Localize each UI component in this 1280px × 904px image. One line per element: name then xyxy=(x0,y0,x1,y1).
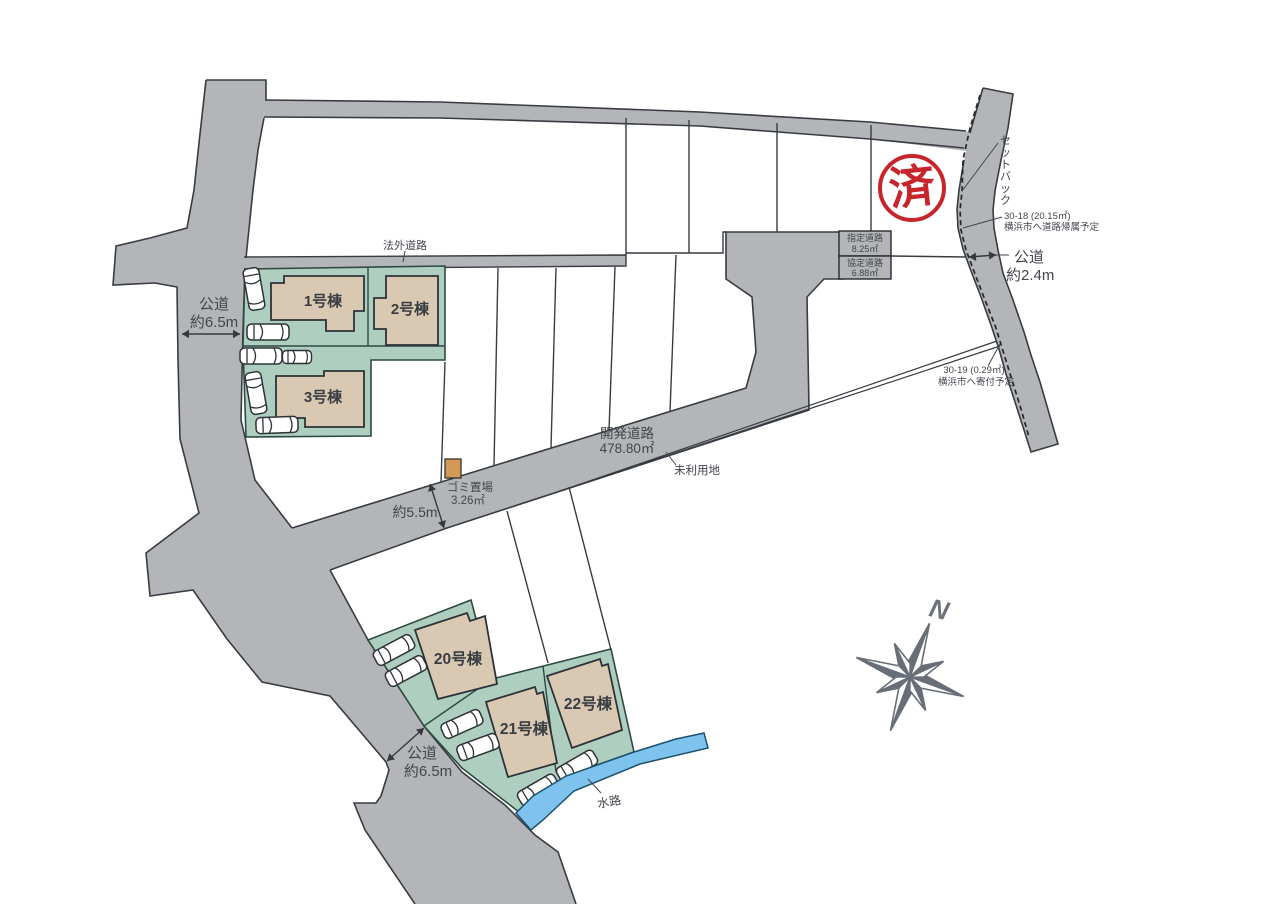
svg-text:ッ: ッ xyxy=(1000,183,1011,195)
svg-text:約6.5m: 約6.5m xyxy=(190,314,238,331)
svg-text:30-19 (0.29㎡): 30-19 (0.29㎡) xyxy=(943,365,1004,376)
svg-text:協定道路: 協定道路 xyxy=(847,257,883,268)
svg-text:ト: ト xyxy=(1000,159,1011,171)
svg-text:未利用地: 未利用地 xyxy=(674,464,720,477)
svg-text:ク: ク xyxy=(1000,194,1011,207)
svg-text:ゴミ置場: ゴミ置場 xyxy=(447,480,493,494)
svg-text:公道: 公道 xyxy=(407,745,437,762)
svg-text:公道: 公道 xyxy=(1014,249,1044,266)
svg-text:ッ: ッ xyxy=(1000,147,1011,159)
svg-text:法外道路: 法外道路 xyxy=(383,238,427,252)
svg-text:公道: 公道 xyxy=(199,296,229,313)
svg-text:1号棟: 1号棟 xyxy=(304,292,343,310)
svg-text:約5.5m: 約5.5m xyxy=(392,504,437,520)
svg-text:30-18 (20.15㎡): 30-18 (20.15㎡) xyxy=(1004,211,1071,222)
svg-text:約2.4m: 約2.4m xyxy=(1006,267,1054,284)
svg-text:済: 済 xyxy=(886,159,938,216)
svg-text:横浜市へ道路帰属予定: 横浜市へ道路帰属予定 xyxy=(1004,221,1100,233)
svg-text:セ: セ xyxy=(1000,134,1011,147)
svg-text:2号棟: 2号棟 xyxy=(391,300,430,318)
svg-text:3.26㎡: 3.26㎡ xyxy=(451,494,485,507)
svg-text:指定道路: 指定道路 xyxy=(847,232,883,243)
svg-text:約6.5m: 約6.5m xyxy=(404,763,452,780)
svg-text:22号棟: 22号棟 xyxy=(564,694,613,713)
svg-text:21号棟: 21号棟 xyxy=(500,719,549,738)
svg-text:20号棟: 20号棟 xyxy=(434,649,483,668)
svg-text:横浜市へ寄付予定: 横浜市へ寄付予定 xyxy=(938,376,1015,388)
svg-text:開発道路: 開発道路 xyxy=(600,426,654,441)
svg-text:バ: バ xyxy=(1000,170,1011,183)
svg-text:3号棟: 3号棟 xyxy=(304,388,343,406)
svg-text:6.88㎡: 6.88㎡ xyxy=(852,268,879,278)
svg-text:8.25㎡: 8.25㎡ xyxy=(852,244,879,254)
svg-text:478.80㎡: 478.80㎡ xyxy=(600,441,655,456)
